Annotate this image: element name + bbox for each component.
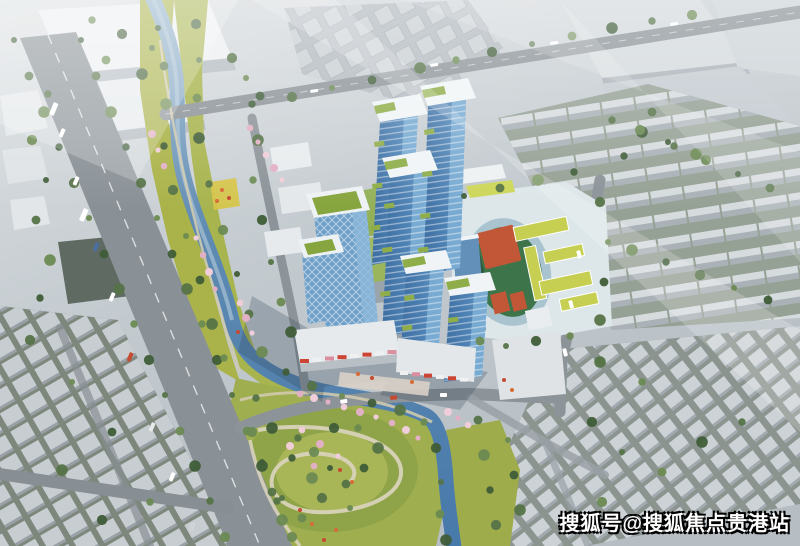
blossom-tree (402, 426, 410, 434)
tree (420, 418, 427, 425)
blossom-tree (311, 463, 318, 470)
tree (440, 534, 452, 546)
tree (474, 416, 483, 425)
storefront-sign (436, 375, 444, 379)
blossom-tree (316, 440, 324, 448)
tree (97, 515, 107, 525)
tree (658, 468, 667, 477)
tree (327, 465, 333, 471)
blossom-tree (465, 422, 472, 429)
tree (266, 422, 278, 434)
tree (25, 335, 35, 345)
watermark-text: 搜狐号@搜狐焦点贵港站 (559, 507, 790, 536)
tree (56, 464, 68, 476)
tree (229, 392, 235, 398)
flower-accent (356, 372, 360, 376)
blossom-tree (205, 268, 213, 276)
tree (354, 424, 361, 431)
tree (32, 216, 41, 225)
flower-accent (310, 522, 314, 526)
blossom-tree (415, 435, 420, 440)
tree (36, 294, 43, 301)
tree (282, 368, 289, 375)
tree (198, 320, 205, 327)
flower-accent (502, 378, 506, 382)
tree (277, 298, 286, 307)
tree (394, 404, 406, 416)
storefront-sign (424, 374, 432, 378)
flower-accent (370, 376, 374, 380)
flower-accent (298, 508, 302, 512)
tree (100, 250, 109, 259)
tree (256, 346, 268, 358)
tree (189, 460, 201, 472)
blossom-tree (310, 394, 318, 402)
tree (259, 459, 265, 465)
storefront-sign (313, 358, 322, 362)
tree (212, 355, 222, 365)
tree (181, 283, 193, 295)
tree (594, 314, 606, 326)
blossom-tree (286, 442, 294, 450)
tree (108, 428, 117, 437)
blossom-tree (341, 404, 348, 411)
tree (257, 215, 267, 225)
tree (368, 399, 377, 408)
blossom-tree (389, 420, 396, 427)
tree (206, 318, 218, 330)
flower-accent (338, 468, 342, 472)
tree (594, 356, 606, 368)
tree (298, 514, 307, 523)
tree (360, 464, 369, 473)
tree (154, 215, 160, 221)
tree (130, 320, 137, 327)
tree (505, 437, 511, 443)
tree (309, 447, 319, 457)
tree (566, 332, 573, 339)
flower-accent (236, 330, 240, 334)
tree (220, 354, 227, 361)
tree (162, 392, 168, 398)
tree (268, 259, 274, 265)
tree (183, 233, 189, 239)
tree (619, 449, 625, 455)
flower-accent (410, 380, 414, 384)
scene-rendering (0, 0, 800, 546)
tree (307, 381, 317, 391)
tree (287, 532, 297, 542)
tree (44, 254, 56, 266)
tree (587, 417, 597, 427)
tree (372, 442, 384, 454)
tree (146, 498, 153, 505)
blossom-tree (325, 399, 330, 404)
tree (738, 418, 745, 425)
tree (86, 215, 92, 221)
storefront-sign (325, 356, 334, 360)
tree (306, 472, 318, 484)
campus-south-plaza (492, 332, 566, 400)
tree (234, 271, 240, 277)
tree (196, 276, 205, 285)
storefront-sign (412, 372, 420, 376)
storefront-sign (448, 376, 456, 380)
storefront-sign (350, 354, 359, 358)
tree (317, 493, 327, 503)
flower-accent (510, 388, 514, 392)
tree (329, 423, 339, 433)
storefront-sign (363, 353, 372, 357)
tree (247, 427, 257, 437)
tree (431, 443, 441, 453)
blossom-tree (193, 235, 198, 240)
tree (206, 497, 213, 504)
tree (276, 514, 288, 526)
tree (220, 532, 230, 542)
tree (503, 343, 509, 349)
tree (294, 434, 301, 441)
blossom-tree (237, 300, 244, 307)
blossom-tree (297, 391, 304, 398)
blossom-tree (455, 415, 460, 420)
vehicle (390, 395, 397, 400)
blossom-tree (356, 408, 364, 416)
flower-accent (322, 538, 326, 542)
tree (113, 283, 125, 295)
tree (638, 378, 645, 385)
tree (514, 504, 526, 516)
storefront-sign (300, 359, 309, 363)
tree (476, 337, 485, 346)
blossom-tree (242, 314, 250, 322)
storefront-sign (460, 378, 468, 382)
storefront-sign (400, 371, 408, 375)
blossom-tree (249, 330, 254, 335)
tree (218, 225, 228, 235)
tree (696, 436, 708, 448)
tree (347, 505, 353, 511)
tree (288, 454, 295, 461)
tree (268, 488, 277, 497)
tree (486, 486, 493, 493)
tree (168, 250, 177, 259)
aerial-rendering: 搜狐号@搜狐焦点贵港站 (0, 0, 800, 546)
tree (510, 471, 519, 480)
storefront-sign (388, 350, 397, 354)
tree (597, 497, 607, 507)
tree (438, 479, 444, 485)
tree (69, 379, 75, 385)
tree (491, 520, 501, 530)
tree (531, 336, 541, 346)
storefront-sign (338, 355, 347, 359)
tree (144, 355, 154, 365)
blossom-tree (212, 286, 217, 291)
blossom-tree (335, 453, 340, 458)
tree (339, 393, 345, 399)
tree (176, 427, 185, 436)
tree (436, 510, 445, 519)
tree (478, 449, 490, 461)
tree (342, 480, 351, 489)
tree (764, 296, 773, 305)
blossom-tree (373, 414, 378, 419)
flower-accent (350, 480, 354, 484)
tree (285, 326, 297, 338)
flower-accent (334, 528, 338, 532)
tree (279, 495, 285, 501)
vehicle (440, 393, 447, 397)
tree (600, 278, 609, 287)
storefront-sign (375, 351, 384, 355)
tree (252, 394, 259, 401)
blossom-tree (444, 408, 452, 416)
blossom-tree (299, 427, 306, 434)
blossom-tree (200, 252, 207, 259)
